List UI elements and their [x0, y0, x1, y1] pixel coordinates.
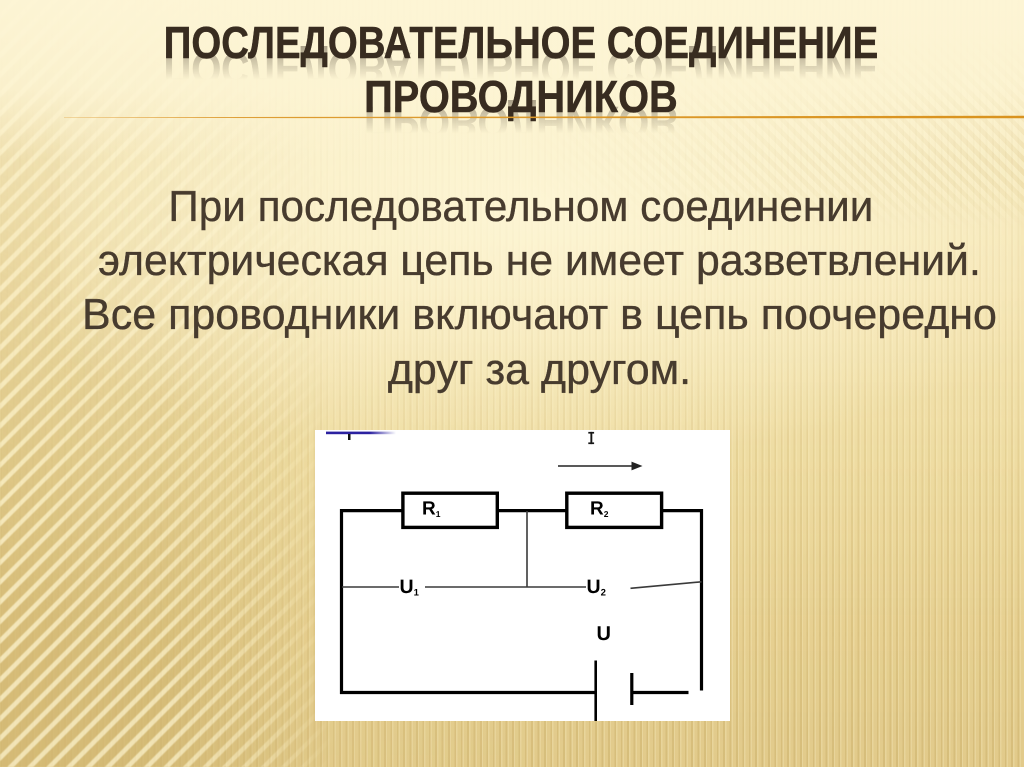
- svg-text:U2: U2: [587, 576, 606, 599]
- svg-text:U: U: [597, 623, 611, 645]
- svg-text:U1: U1: [400, 576, 420, 599]
